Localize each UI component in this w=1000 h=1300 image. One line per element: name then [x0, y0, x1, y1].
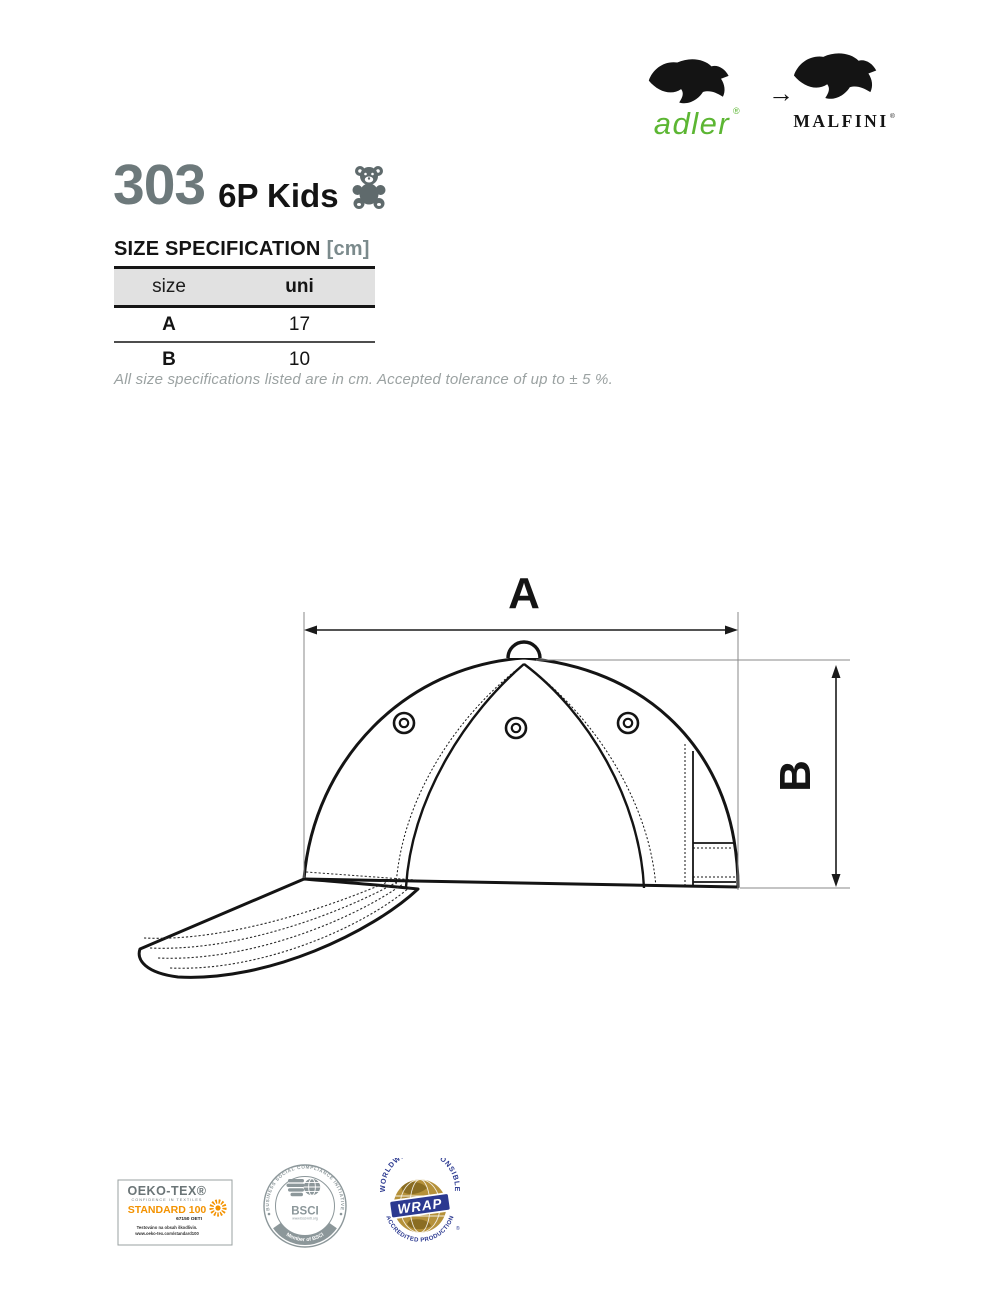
dim-a-value: 17	[224, 308, 375, 341]
product-title: 303 6P Kids	[113, 163, 389, 209]
size-table: size uni A 17 B 10	[114, 266, 375, 376]
arrowhead-down-icon	[832, 874, 841, 887]
arrowhead-up-icon	[832, 665, 841, 678]
wrap-registered-mark: ®	[456, 1225, 460, 1232]
adler-bird-icon	[649, 59, 729, 103]
adler-logo: adler ®	[649, 59, 740, 141]
bsci-dot-left	[268, 1213, 271, 1216]
cap-brim	[139, 879, 418, 977]
product-code: 303	[113, 163, 205, 209]
oeko-tex-line2: www.oeko-tex.com/standard100	[134, 1231, 199, 1236]
dimension-b: B	[771, 665, 841, 887]
size-spec-heading-text: SIZE SPECIFICATION	[114, 238, 321, 260]
transition-arrow-icon: →	[768, 78, 794, 108]
arrowhead-right-icon	[725, 626, 738, 635]
cap-technical-drawing: A B	[100, 560, 900, 1040]
brand-transition-logos: adler ® → MALFINI ®	[620, 48, 930, 158]
arrowhead-left-icon	[304, 626, 317, 635]
teddy-bear-icon	[349, 163, 389, 209]
size-spec-heading: SIZE SPECIFICATION[cm]	[114, 238, 370, 261]
spec-note: All size specifications listed are in cm…	[114, 371, 613, 388]
table-row-a: A 17	[114, 308, 375, 343]
oeko-tex-number: 67150 OETI	[176, 1216, 203, 1222]
product-name: 6P Kids	[218, 182, 338, 209]
oeko-tex-standard: STANDARD 100	[128, 1204, 207, 1216]
malfini-logo: MALFINI ®	[793, 53, 895, 131]
oeko-tex-subtitle: CONFIDENCE IN TEXTILES	[132, 1198, 203, 1202]
cap-button	[508, 642, 540, 658]
cap-dome	[304, 658, 738, 887]
adler-wordmark: adler	[654, 106, 731, 141]
cert-wrap: WORLDWIDE RESPONSIBLE ACCREDITED PRODUCT…	[378, 1158, 462, 1244]
brim-outline	[139, 879, 418, 977]
dimension-a: A	[304, 569, 738, 635]
table-header-size: size	[114, 269, 224, 305]
cap-outline	[304, 658, 738, 887]
malfini-registered-mark: ®	[890, 112, 895, 120]
oeko-tex-brand: OEKO-TEX®	[128, 1184, 207, 1198]
oeko-tex-line1: Testováno na obsah škodlivin.	[137, 1225, 198, 1230]
cert-oeko-tex: OEKO-TEX® CONFIDENCE IN TEXTILES STANDAR…	[118, 1180, 232, 1245]
certification-logos: OEKO-TEX® CONFIDENCE IN TEXTILES STANDAR…	[105, 1158, 485, 1258]
spec-sheet-page: adler ® → MALFINI ® 303 6P Kids	[0, 0, 1000, 1300]
bsci-dot-right	[340, 1213, 343, 1216]
table-header-uni: uni	[224, 269, 375, 305]
dim-a-key: A	[114, 308, 224, 341]
unit-label: [cm]	[327, 238, 370, 260]
bsci-url: www.bsci-intl.org	[292, 1217, 318, 1221]
cert-bsci: BUSINESS SOCIAL COMPLIANCE INITIATIVE Me…	[264, 1165, 346, 1247]
adler-registered-mark: ®	[733, 106, 740, 116]
dim-b-label: B	[771, 760, 820, 792]
malfini-wordmark: MALFINI	[793, 111, 888, 131]
table-header-row: size uni	[114, 269, 375, 308]
dim-a-label: A	[508, 569, 540, 618]
malfini-bird-icon	[794, 53, 876, 98]
